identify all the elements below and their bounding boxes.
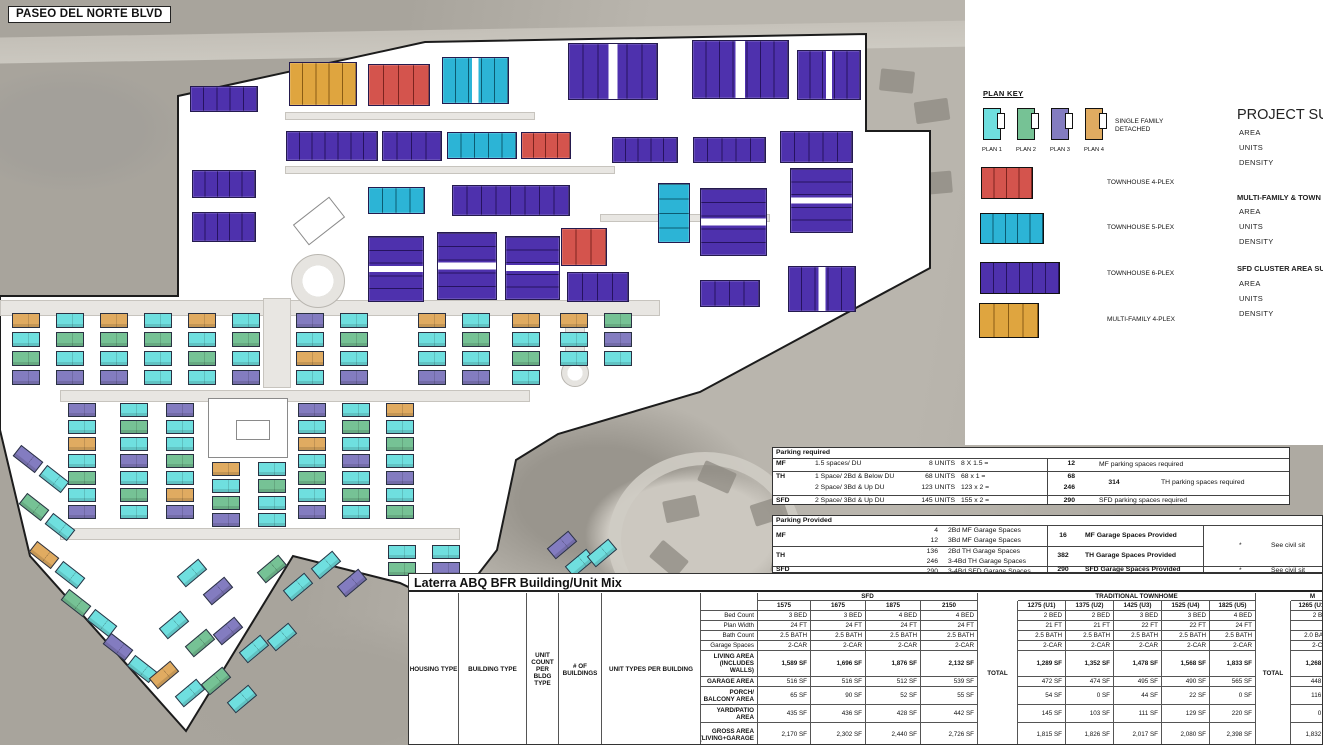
unit-mix-value: 103 SF (1066, 705, 1114, 723)
parking-units: 8 UNITS (893, 460, 955, 468)
unit-mix-value: 516 SF (811, 677, 866, 687)
sfd-house (56, 351, 84, 366)
summary-row: AREA (1239, 279, 1261, 288)
parking-calc: 155 x 2 = (961, 497, 989, 505)
sfd-house (386, 488, 414, 502)
garage-count: 12 (873, 537, 938, 545)
unit-mix-value: 52 SF (866, 687, 921, 705)
townhouse-6plex-building (192, 170, 256, 198)
sfd-house (203, 577, 233, 606)
sfd-house (386, 403, 414, 417)
summary-row: DENSITY (1239, 158, 1274, 167)
parking-rate: 1.5 spaces/ DU (815, 460, 861, 468)
sfd-house (311, 551, 341, 580)
sfd-house (166, 403, 194, 417)
sfd-house (120, 437, 148, 451)
sfd-house (298, 505, 326, 519)
sfd-house (337, 569, 367, 598)
unit-mix-row-label: LIVING AREA (INCLUDES WALLS) (701, 651, 758, 677)
townhouse-4plex-building (561, 228, 607, 266)
unit-mix-value: 54 SF (1018, 687, 1066, 705)
grid-line (773, 525, 1323, 526)
legend-panel: PLAN KEY PLAN 1 PLAN 2 PLAN 3 PLAN 4 SIN… (965, 0, 1323, 445)
parking-note: MF parking spaces required (1099, 461, 1183, 469)
townhouse-5plex-swatch (980, 213, 1044, 244)
unit-mix-group-header: SFD (758, 593, 978, 601)
townhouse-6plex-swatch (980, 262, 1060, 294)
grid-line (773, 458, 1290, 459)
sfd-house (232, 332, 260, 347)
unit-mix-value: 129 SF (1162, 705, 1210, 723)
townhouse-6plex-building (700, 280, 760, 307)
unit-mix-value: 2-CAR (921, 641, 978, 651)
unit-mix-left-header: # OF BUILDINGS (559, 593, 602, 745)
sfd-house (227, 685, 257, 714)
unit-mix-total-label: TOTAL (1256, 601, 1291, 745)
sfd-house (12, 370, 40, 385)
unit-mix-value: 2,080 SF (1162, 723, 1210, 745)
unit-mix-value: 2.0 BATH (1291, 631, 1323, 641)
sfd-house (56, 370, 84, 385)
summary-row: DENSITY (1239, 309, 1274, 318)
grid-line (773, 546, 1203, 547)
unit-mix-row-label: Bed Count (701, 611, 758, 621)
unit-mix-left-header: BUILDING TYPE (459, 593, 527, 745)
sfd-house (232, 370, 260, 385)
garage-total-desc: TH Garage Spaces Provided (1085, 552, 1176, 560)
unit-mix-value: 2-CAR (1018, 641, 1066, 651)
unit-mix-value: 111 SF (1114, 705, 1162, 723)
sfd-house (342, 505, 370, 519)
sfd-house (166, 505, 194, 519)
sfd-house (462, 313, 490, 328)
parking-type: SFD (776, 497, 790, 505)
sfd-house (298, 437, 326, 451)
unit-mix-value: 2-CAR (1162, 641, 1210, 651)
sfd-house (418, 313, 446, 328)
sfd-house (188, 370, 216, 385)
sfd-house (418, 351, 446, 366)
sfd-house (560, 351, 588, 366)
plan3-label: PLAN 3 (1045, 147, 1075, 153)
parking-type: MF (776, 460, 786, 468)
sfd-house (212, 462, 240, 476)
sfd-house (100, 332, 128, 347)
sfd-house (212, 496, 240, 510)
grid-line (773, 495, 1290, 496)
unit-mix-value: 428 SF (866, 705, 921, 723)
unit-mix-group-header: TRADITIONAL TOWNHOME (1018, 593, 1256, 601)
garage-desc: 2Bd MF Garage Spaces (948, 527, 1021, 535)
sfd-house (120, 505, 148, 519)
sfd-house (296, 351, 324, 366)
townhouse-4plex-label: TOWNHOUSE 4-PLEX (1107, 179, 1174, 187)
townhouse-6plex-building (382, 131, 442, 161)
unit-mix-value: 1,589 SF (758, 651, 811, 677)
road (60, 528, 460, 540)
sfd-house (68, 437, 96, 451)
unit-mix-value: 2.5 BATH (866, 631, 921, 641)
sfd-house (257, 555, 287, 584)
sfd-house (232, 351, 260, 366)
summary-row: UNITS (1239, 294, 1263, 303)
sfd-house (512, 370, 540, 385)
parking-note: SFD parking spaces required (1099, 497, 1187, 505)
summary-row: UNITS (1239, 143, 1263, 152)
sfd-house (258, 462, 286, 476)
garage-count: 136 (873, 548, 938, 556)
sfd-house (342, 488, 370, 502)
unit-mix-value: 2.5 BATH (1162, 631, 1210, 641)
townhouse-6plex-building (437, 232, 497, 300)
sfd-house (56, 332, 84, 347)
unit-mix-value: 4 BED (866, 611, 921, 621)
unit-mix-row-label: GROSS AREA (LIVING+GARAGE (701, 723, 758, 745)
unit-mix-title: Laterra ABQ BFR Building/Unit Mix (409, 574, 1322, 592)
townhouse-4plex-swatch (981, 167, 1033, 199)
sfd-house (68, 471, 96, 485)
sfd-house (144, 313, 172, 328)
sfd-house (188, 351, 216, 366)
unit-mix-value: 2-CAR (1114, 641, 1162, 651)
townhouse-5plex-building (368, 187, 425, 214)
unit-mix-value: 1,832 SF (1291, 723, 1323, 745)
road (285, 166, 615, 174)
sfd-house (560, 313, 588, 328)
parking-provided-table: Parking ProvidedMF42Bd MF Garage Spaces1… (772, 515, 1323, 573)
sfd-house (13, 445, 44, 473)
townhouse-6plex-label: TOWNHOUSE 6-PLEX (1107, 270, 1174, 278)
unit-mix-value: 2 BED (1291, 611, 1323, 621)
garage-count: 4 (873, 527, 938, 535)
sfd-house (212, 479, 240, 493)
unit-mix-value: 3 BED (811, 611, 866, 621)
sfd-house (177, 559, 207, 588)
townhouse-6plex-building (568, 43, 658, 100)
sfd-house (340, 332, 368, 347)
sfd-house (340, 313, 368, 328)
sfd-house (12, 313, 40, 328)
sfd-house (258, 479, 286, 493)
unit-mix-value: 490 SF (1162, 677, 1210, 687)
sfd-house (512, 332, 540, 347)
townhouse-6plex-building (612, 137, 678, 163)
unit-mix-value: 2,398 SF (1210, 723, 1256, 745)
unit-mix-value: 2-CAR (1066, 641, 1114, 651)
unit-mix-value: 2,440 SF (866, 723, 921, 745)
townhouse-6plex-building (700, 188, 767, 256)
sfd-house (166, 420, 194, 434)
parking-rate: 2 Space/ 3Bd & Up DU (815, 484, 885, 492)
townhouse-6plex-building (452, 185, 570, 216)
sfd-house (547, 531, 577, 560)
sfd-house (68, 488, 96, 502)
sfd-house (604, 351, 632, 366)
sfd-house (512, 313, 540, 328)
sfd-house (388, 545, 416, 559)
unit-mix-left-header: HOUSING TYPE (409, 593, 459, 745)
garage-desc: 3-4Bd TH Garage Spaces (948, 558, 1026, 566)
sfd-house (29, 541, 60, 569)
plan-notch (997, 113, 1005, 129)
road (263, 298, 291, 388)
unit-mix-value: 2,132 SF (921, 651, 978, 677)
unit-mix-row-label: Garage Spaces (701, 641, 758, 651)
garage-count: 246 (873, 558, 938, 566)
sfd-house (120, 488, 148, 502)
single-family-detached-label: SINGLE FAMILY DETACHED (1115, 118, 1173, 134)
unit-mix-value: 436 SF (811, 705, 866, 723)
sfd-house (232, 313, 260, 328)
sfd-house (298, 471, 326, 485)
unit-mix-value: 2 BED (1018, 611, 1066, 621)
unit-mix-value: 0 SF (1210, 687, 1256, 705)
parking-units: 123 UNITS (893, 484, 955, 492)
sfd-house (19, 493, 50, 521)
unit-mix-value: 2.5 BATH (921, 631, 978, 641)
unit-mix-value: 2 BED (1066, 611, 1114, 621)
sfd-house (462, 332, 490, 347)
parking-note: TH parking spaces required (1161, 479, 1245, 487)
sfd-house (512, 351, 540, 366)
sfd-house (87, 609, 118, 637)
summary-row: DENSITY (1239, 237, 1274, 246)
parking-calc: 123 x 2 = (961, 484, 989, 492)
summary-section-mf-th: MULTI-FAMILY & TOWN (1237, 193, 1321, 202)
townhouse-6plex-building (790, 168, 853, 233)
unit-mix-value: 24 FT (921, 621, 978, 631)
unit-mix-value: 2,170 SF (758, 723, 811, 745)
sfd-house (418, 332, 446, 347)
clubhouse-outline (236, 420, 270, 440)
sfd-house (298, 488, 326, 502)
sfd-house (212, 513, 240, 527)
clubhouse-outline (293, 197, 345, 246)
road (285, 112, 535, 120)
garage-total-desc: MF Garage Spaces Provided (1085, 532, 1177, 540)
plan-notch (1031, 113, 1039, 129)
sfd-house (56, 313, 84, 328)
parking-type: SFD (776, 566, 790, 573)
sfd-house (298, 403, 326, 417)
sfd-house (120, 420, 148, 434)
unit-mix-value: 116 SF (1291, 687, 1323, 705)
townhouse-6plex-building (788, 266, 856, 312)
townhouse-6plex-building (368, 236, 424, 302)
road (60, 390, 530, 402)
townhouse-6plex-building (693, 137, 766, 163)
sfd-house (432, 545, 460, 559)
unit-mix-value: 448 SF (1291, 677, 1323, 687)
sfd-house (120, 471, 148, 485)
unit-mix-value: 145 SF (1018, 705, 1066, 723)
unit-mix-value: 0 SF (1066, 687, 1114, 705)
sfd-house (296, 332, 324, 347)
plan4-label: PLAN 4 (1079, 147, 1109, 153)
sfd-house (68, 420, 96, 434)
sfd-house (258, 496, 286, 510)
townhouse-5plex-building (658, 183, 690, 243)
unit-mix-value: 24 FT (758, 621, 811, 631)
multifamily-4plex-building (289, 62, 357, 106)
unit-mix-value: 1,826 SF (1066, 723, 1114, 745)
unit-mix-value: 3 BED (1114, 611, 1162, 621)
unit-mix-value: 4 BED (1210, 611, 1256, 621)
unit-mix-value: 1,352 SF (1066, 651, 1114, 677)
unit-mix-spacer (701, 593, 758, 611)
unit-mix-value: 2.5 BATH (811, 631, 866, 641)
townhouse-6plex-building (780, 131, 853, 163)
unit-mix-value: 1,268 SF (1291, 651, 1323, 677)
unit-mix-value: 90 SF (811, 687, 866, 705)
plan-notch (1099, 113, 1107, 129)
unit-mix-value: 2-CAR (1291, 641, 1323, 651)
sfd-house (298, 454, 326, 468)
unit-mix-value: 24 FT (811, 621, 866, 631)
parking-required-table: Parking requiredMF1.5 spaces/ DU8 UNITS8… (772, 447, 1290, 505)
parking-type: TH (776, 552, 785, 560)
garage-total-desc: SFD Garage Spaces Provided (1085, 566, 1181, 573)
unit-mix-value: 44 SF (1114, 687, 1162, 705)
sfd-house (55, 561, 86, 589)
unit-mix-value: 24 FT (866, 621, 921, 631)
plan3-swatch (1051, 108, 1069, 140)
sfd-house (604, 332, 632, 347)
sfd-house (68, 505, 96, 519)
sfd-house (120, 454, 148, 468)
unit-mix-plan-header: 1425 (U3) (1114, 601, 1162, 611)
parking-type: TH (776, 473, 785, 481)
sfd-house (185, 629, 215, 658)
unit-mix-value: 2-CAR (811, 641, 866, 651)
townhouse-4plex-building (521, 132, 571, 159)
grid-line (1203, 525, 1204, 573)
unit-mix-value: 55 SF (921, 687, 978, 705)
unit-mix-plan-header: 2150 (921, 601, 978, 611)
sfd-house (386, 471, 414, 485)
plan1-swatch (983, 108, 1001, 140)
townhouse-5plex-building (447, 132, 517, 159)
townhouse-6plex-building (190, 86, 258, 112)
unit-mix-value: 516 SF (758, 677, 811, 687)
street-label: PASEO DEL NORTE BLVD (8, 6, 171, 23)
townhouse-6plex-building (192, 212, 256, 242)
unit-mix-total-label: TOTAL (978, 601, 1018, 745)
multifamily-4plex-label: MULTI-FAMILY 4-PLEX (1107, 316, 1175, 324)
multifamily-4plex-swatch (979, 303, 1039, 338)
sfd-house (267, 623, 297, 652)
unit-mix-value: 65 SF (758, 687, 811, 705)
unit-mix-value: 4 BED (921, 611, 978, 621)
parking-total: 314 (1079, 479, 1149, 487)
unit-mix-value: 1,876 SF (866, 651, 921, 677)
unit-mix-left-header: UNIT TYPES PER BUILDING (602, 593, 701, 745)
roundabout (291, 254, 345, 308)
unit-mix-value: 2.5 BATH (1066, 631, 1114, 641)
sfd-house (12, 351, 40, 366)
plan2-label: PLAN 2 (1011, 147, 1041, 153)
sfd-house (342, 471, 370, 485)
sfd-house (462, 370, 490, 385)
unit-mix-value: 1,696 SF (811, 651, 866, 677)
sfd-house (166, 454, 194, 468)
garage-total: 382 (1047, 552, 1079, 560)
sfd-house (386, 454, 414, 468)
unit-mix-plan-header: 1275 (U1) (1018, 601, 1066, 611)
summary-row: UNITS (1239, 222, 1263, 231)
project-summary-title: PROJECT SUM (1237, 107, 1323, 123)
townhouse-6plex-building (567, 272, 629, 302)
plan2-swatch (1017, 108, 1035, 140)
sfd-house (100, 370, 128, 385)
sfd-house (418, 370, 446, 385)
unit-mix-plan-header: 1375 (U2) (1066, 601, 1114, 611)
unit-mix-value: 2,017 SF (1114, 723, 1162, 745)
sfd-house (342, 437, 370, 451)
plan1-label: PLAN 1 (977, 147, 1007, 153)
sfd-house (296, 313, 324, 328)
sfd-house (159, 611, 189, 640)
grid-line (1047, 458, 1048, 505)
sfd-house (144, 351, 172, 366)
unit-mix-value: 435 SF (758, 705, 811, 723)
unit-mix-value: 2.5 BATH (1210, 631, 1256, 641)
parking-rate: 1 Space/ 2Bd & Below DU (815, 473, 894, 481)
unit-mix-value: 1,815 SF (1018, 723, 1066, 745)
unit-mix-value: 21 FT (1066, 621, 1114, 631)
unit-mix-value: 539 SF (921, 677, 978, 687)
parking-rate: 2 Space/ 3Bd & Up DU (815, 497, 885, 505)
sfd-house (120, 403, 148, 417)
sfd-house (386, 420, 414, 434)
sfd-house (340, 351, 368, 366)
unit-mix-value (1291, 621, 1323, 631)
sfd-house (342, 420, 370, 434)
unit-mix-table: Laterra ABQ BFR Building/Unit Mix HOUSIN… (408, 573, 1323, 745)
parking-required-title: Parking required (776, 449, 830, 457)
unit-mix-value: 565 SF (1210, 677, 1256, 687)
unit-mix-value: 24 FT (1210, 621, 1256, 631)
sfd-house (296, 370, 324, 385)
unit-mix-value: 22 SF (1162, 687, 1210, 705)
sfd-house (340, 370, 368, 385)
townhouse-5plex-label: TOWNHOUSE 5-PLEX (1107, 224, 1174, 232)
unit-mix-value: 2,302 SF (811, 723, 866, 745)
unit-mix-value: 2.5 BATH (1018, 631, 1066, 641)
plan4-swatch (1085, 108, 1103, 140)
parking-calc: 68 x 1 = (961, 473, 985, 481)
sfd-house (201, 667, 231, 696)
unit-mix-row-label: GARAGE AREA (701, 677, 758, 687)
parking-provided-title: Parking Provided (776, 517, 832, 525)
sfd-house (386, 505, 414, 519)
plan-key-title: PLAN KEY (983, 89, 1023, 98)
unit-mix-value: 3 BED (1162, 611, 1210, 621)
parking-calc: 8 X 1.5 = (961, 460, 988, 468)
unit-mix-value: 1,478 SF (1114, 651, 1162, 677)
grid-line (773, 471, 1290, 472)
sfd-house (283, 573, 313, 602)
unit-mix-left-header: UNIT COUNT PER BLDG TYPE (527, 593, 559, 745)
townhouse-4plex-building (368, 64, 430, 106)
garage-desc: 2Bd TH Garage Spaces (948, 548, 1020, 556)
garage-desc: 3Bd MF Garage Spaces (948, 537, 1021, 545)
sfd-house (213, 617, 243, 646)
unit-mix-value: 22 FT (1114, 621, 1162, 631)
unit-mix-row-label: PORCH/ BALCONY AREA (701, 687, 758, 705)
unit-mix-value: 474 SF (1066, 677, 1114, 687)
sfd-house (61, 589, 92, 617)
